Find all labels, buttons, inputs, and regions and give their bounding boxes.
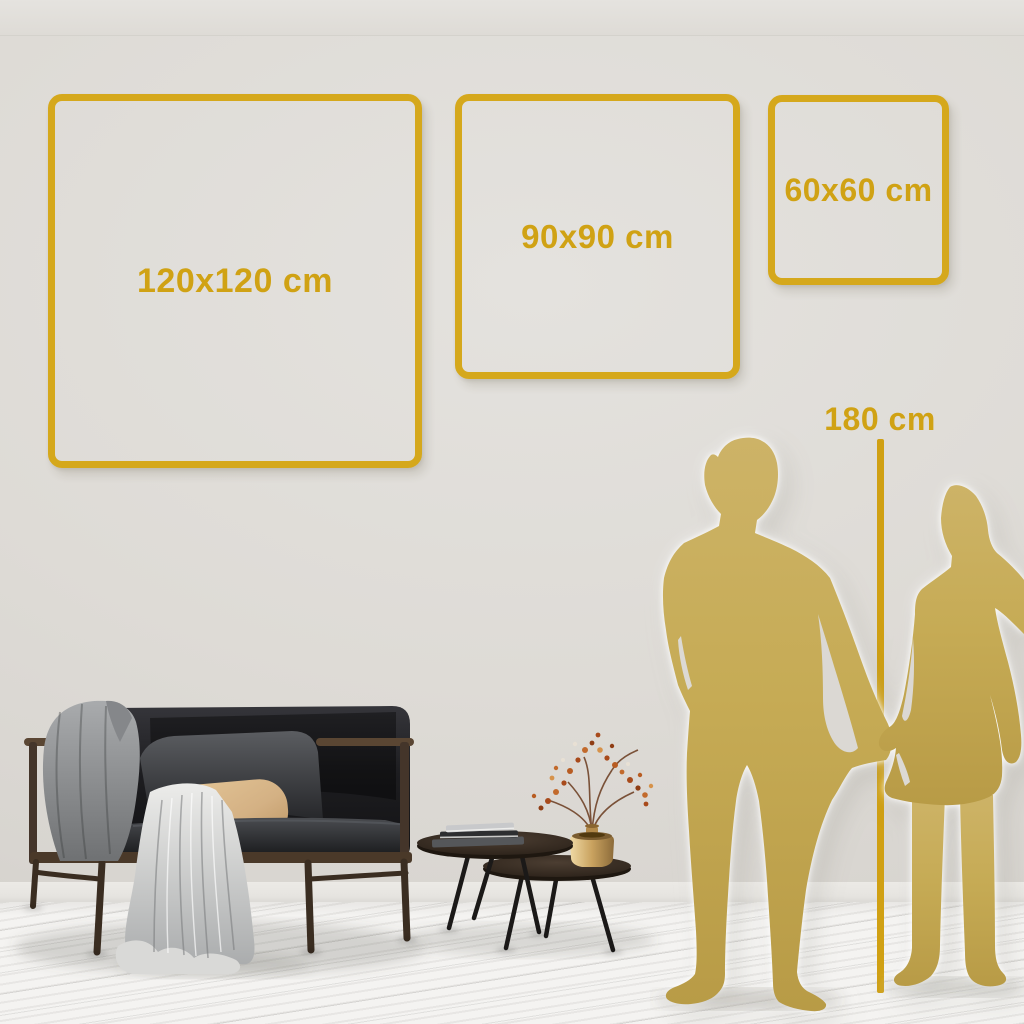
dried-flower-berries [532,733,653,811]
size-label-90x90: 90x90 cm [521,218,674,256]
woman-left-leg [894,795,945,986]
size-frame-60x60: 60x60 cm [768,95,949,285]
gray-blanket [43,701,140,861]
size-label-60x60: 60x60 cm [784,172,932,209]
book-stack [432,823,524,848]
size-guide-scene: 120x120 cm 90x90 cm 60x60 cm 180 cm [0,0,1024,1024]
size-frame-90x90: 90x90 cm [455,94,740,379]
man-silhouette [663,438,892,1012]
size-label-120x120: 120x120 cm [137,262,333,301]
ceiling-strip [0,0,1024,36]
floor-shadows [15,922,655,977]
couple-silhouette [650,420,1024,1024]
woman-right-leg [960,795,1006,986]
size-frame-120x120: 120x120 cm [48,94,422,468]
furniture-illustration [0,680,680,1024]
